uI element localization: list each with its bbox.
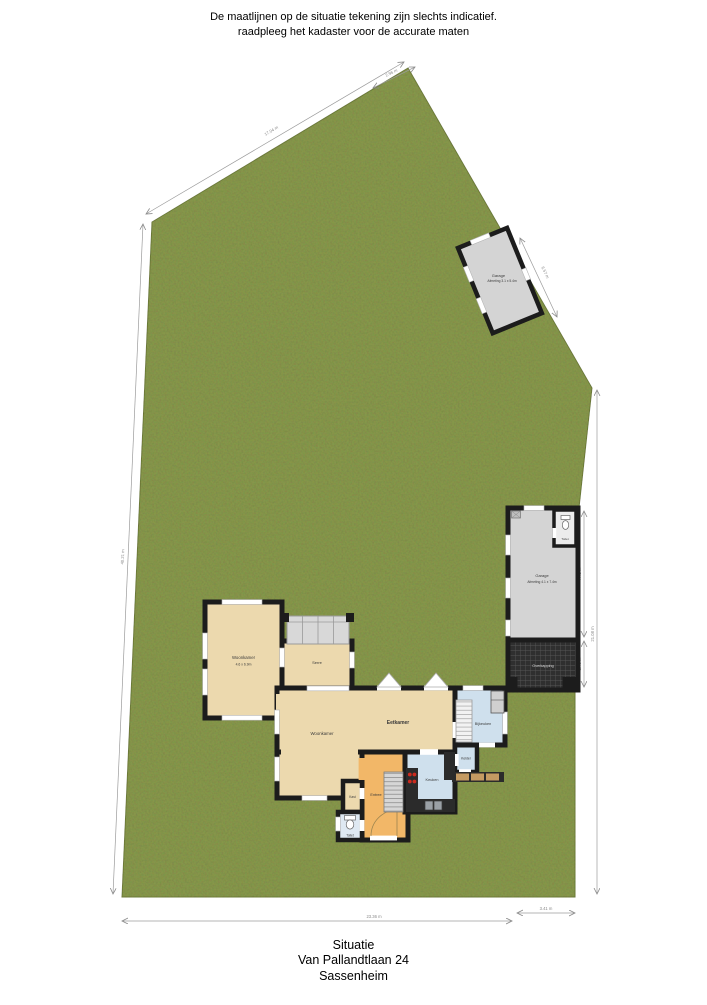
garage-upper-label: Garage bbox=[492, 273, 506, 278]
fridge-icon bbox=[491, 691, 504, 713]
room-label-keuken: Keuken bbox=[426, 778, 439, 782]
situation-drawing: 17.04 m 2.96 m 6.57 m 40.21 m 23.36 m 3.… bbox=[0, 0, 707, 1000]
drawing-title-city: Sassenheim bbox=[0, 969, 707, 984]
garage-toilet-label: Toilet bbox=[561, 537, 568, 541]
room-label-bijkeuken: Bijkeuken bbox=[475, 722, 491, 726]
disclaimer-line1: De maatlijnen op de situatie tekening zi… bbox=[0, 10, 707, 25]
garage-lower-size-label: Afmeting 4.1 x 7.4m bbox=[527, 580, 557, 584]
dimension-label-bottom: 23.36 m bbox=[366, 914, 382, 919]
room-label-woonkamer-wing: Woonkamer bbox=[232, 655, 256, 660]
room-main-living bbox=[277, 688, 455, 752]
site-plan-svg: 17.04 m 2.96 m 6.57 m 40.21 m 23.36 m 3.… bbox=[0, 0, 707, 1000]
room-woonkamer-wing bbox=[205, 602, 282, 718]
drawing-title-type: Situatie bbox=[0, 938, 707, 953]
garage-upper-size-label: Afmeting 3.1 x 5.4m bbox=[487, 279, 517, 283]
room-size-woonkamer-wing: 4.6 x 6.9m bbox=[236, 663, 252, 667]
stairs-bijkeuken bbox=[456, 700, 472, 742]
opening-living-to-entree bbox=[359, 758, 366, 780]
toilet-icon-bowl bbox=[562, 521, 568, 530]
drawing-title: Situatie Van Pallandtlaan 24 Sassenheim bbox=[0, 938, 707, 984]
garage-lower: Toilet Garage Afmeting 4.1 x 7.4m Overka… bbox=[506, 506, 579, 690]
stairs-entree bbox=[384, 772, 403, 812]
garage-toilet-door-gap bbox=[552, 528, 556, 538]
drawing-title-address: Van Pallandtlaan 24 bbox=[0, 953, 707, 968]
toilet-icon-tank bbox=[561, 516, 570, 520]
serre-glazing bbox=[281, 613, 354, 644]
carport-label: Overkapping bbox=[532, 664, 554, 668]
room-label-toilet: Toilet bbox=[346, 834, 354, 838]
room-label-serre: Serre bbox=[312, 660, 323, 665]
room-label-kelder: Kelder bbox=[461, 757, 472, 761]
dimension-label-bottom-right: 3.41 m bbox=[540, 906, 553, 911]
dimension-label-right: 21.08 m bbox=[590, 626, 595, 642]
room-merge-patch bbox=[281, 748, 358, 755]
disclaimer-line2: raadpleeg het kadaster voor de accurate … bbox=[0, 25, 707, 40]
garage-toilet-room: Toilet bbox=[552, 510, 576, 546]
room-label-eetkamer: Eetkamer bbox=[387, 720, 410, 726]
dimension-label-left: 40.21 m bbox=[120, 549, 126, 565]
room-label-woonkamer: Woonkamer bbox=[310, 731, 334, 736]
room-label-entree: Entree bbox=[370, 793, 381, 797]
carport-post-right bbox=[563, 677, 576, 690]
dimension-label-top-left: 17.04 m bbox=[263, 124, 279, 136]
garage-lower-label: Garage bbox=[535, 573, 549, 578]
room-serre-floor bbox=[282, 641, 352, 690]
room-label-kast: Kast bbox=[349, 795, 355, 799]
disclaimer: De maatlijnen op de situatie tekening zi… bbox=[0, 10, 707, 40]
dimension-label-upper-right: 6.57 m bbox=[540, 266, 550, 280]
stoep-tiles bbox=[452, 772, 504, 782]
